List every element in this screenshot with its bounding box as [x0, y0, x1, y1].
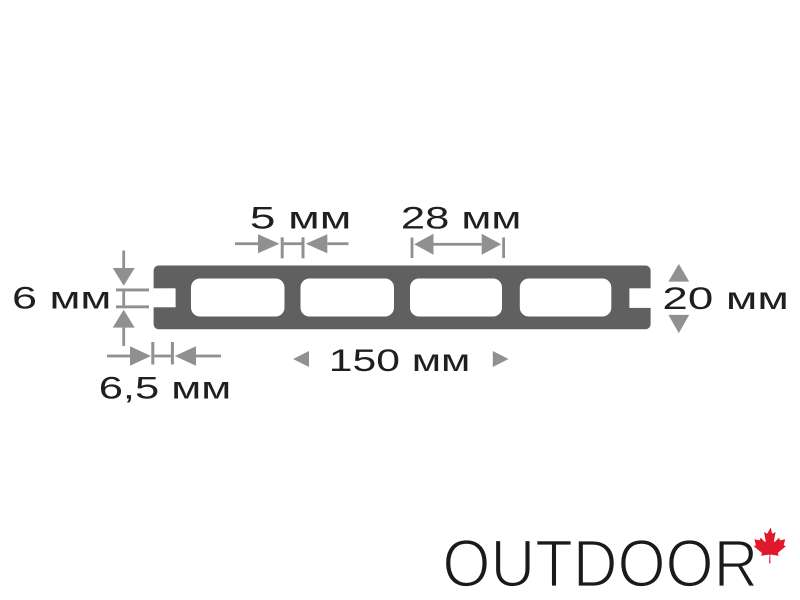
svg-text:6,5 мм: 6,5 мм: [99, 371, 231, 406]
svg-text:5 мм: 5 мм: [250, 201, 351, 236]
svg-text:6 мм: 6 мм: [12, 281, 111, 316]
svg-text:28 мм: 28 мм: [401, 201, 521, 236]
svg-text:150 мм: 150 мм: [329, 342, 471, 377]
svg-text:20 мм: 20 мм: [662, 281, 788, 316]
svg-text:OUTDOOR: OUTDOOR: [442, 526, 758, 600]
